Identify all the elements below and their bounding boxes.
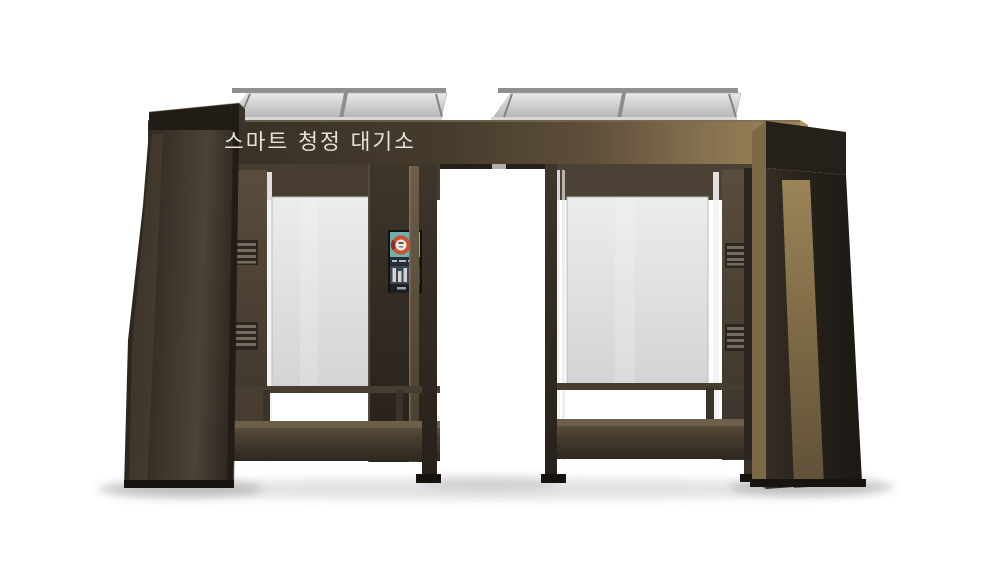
bench-front-panel	[211, 428, 440, 461]
shelter-render: 스마트 청정 대기소	[0, 0, 1000, 562]
door-lintel-trim	[437, 164, 545, 169]
mullion-highlight	[409, 166, 411, 462]
roof-solar-panels-right	[491, 88, 741, 123]
glass-bottom-rail	[549, 383, 767, 390]
right-purifier-tower	[744, 121, 866, 489]
gauge-readout	[399, 246, 403, 248]
glass-panel	[272, 197, 370, 388]
sign-text: 스마트 청정 대기소	[224, 130, 416, 155]
rail-post	[263, 390, 270, 426]
level-bar	[398, 271, 402, 282]
roof-solar-panels-left	[225, 88, 447, 123]
glass-sheen	[300, 198, 318, 387]
left-purifier-tower	[124, 103, 245, 488]
footer-dash	[397, 287, 406, 290]
bench-top-lip	[211, 421, 440, 428]
tower-cap	[766, 121, 846, 175]
roof-back-rail	[232, 88, 446, 93]
roof-back-rail	[498, 88, 738, 93]
glass-panel	[567, 197, 708, 384]
right-bay	[545, 164, 767, 460]
column-edge-highlight	[368, 164, 370, 462]
tower-base	[750, 479, 866, 487]
gauge-readout	[399, 242, 404, 244]
glass-sheen	[615, 198, 635, 383]
rail-post	[706, 387, 714, 423]
door-track-bracket	[492, 164, 506, 169]
leg-foot	[416, 474, 441, 483]
solar-panel	[492, 93, 741, 119]
solar-panel	[226, 93, 447, 119]
tower-side-bronze	[752, 121, 766, 489]
level-bar	[393, 268, 397, 282]
gauge-segment	[393, 241, 394, 249]
rail-post	[396, 390, 403, 426]
leg-foot	[541, 474, 566, 483]
level-bar	[404, 268, 408, 282]
bench-top-lip	[549, 419, 767, 426]
door-jamb-right	[545, 164, 557, 474]
glass-bottom-rail	[212, 386, 440, 393]
band-text-dash	[392, 260, 397, 262]
render-canvas: 스마트 청정 대기소	[0, 0, 1000, 562]
donut-gauge	[394, 238, 409, 253]
tower-base	[124, 480, 234, 488]
bench-front-panel	[549, 426, 767, 459]
band-top-highlight	[148, 120, 800, 122]
door-jamb-left	[422, 164, 437, 474]
band-text-dash	[399, 260, 406, 262]
glass-edge-strip	[562, 170, 565, 460]
